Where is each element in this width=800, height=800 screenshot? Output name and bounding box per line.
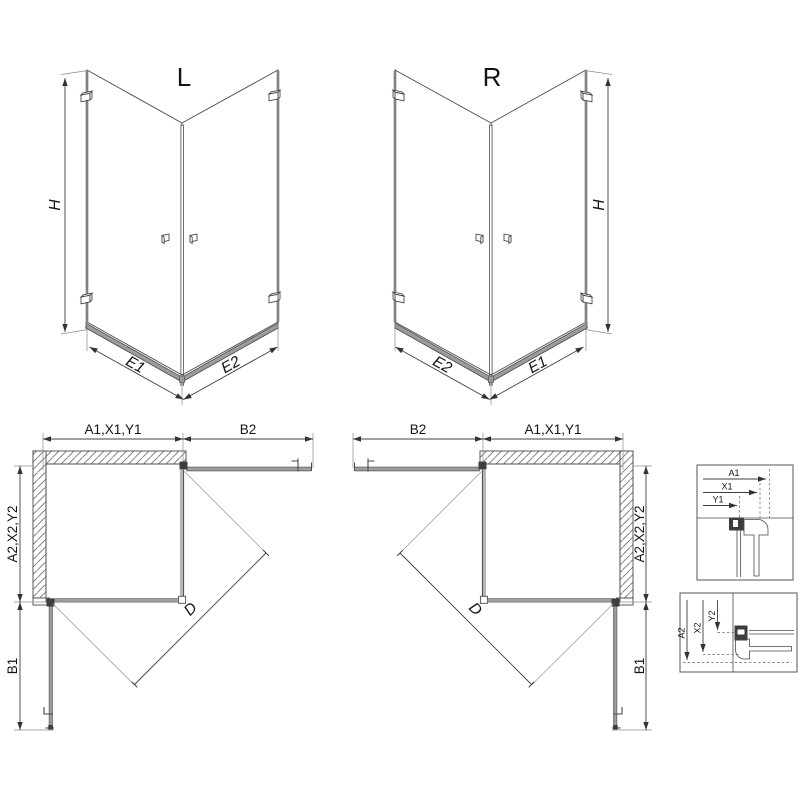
wall-profile-detail-horizontal — [697, 465, 793, 580]
dim-label-height-right: H — [591, 199, 608, 211]
plan-left-view — [14, 433, 313, 730]
variant-label-right: R — [483, 62, 502, 92]
dim-label-door-depth-left-plan: B1 — [5, 658, 20, 675]
dim-label-depth-inner-right-plan: A2,X2,Y2 — [632, 505, 647, 562]
technical-drawing-page: L R H H E1 E2 E2 E1 A1,X1,Y1 B2 A2,X2,Y2… — [0, 0, 800, 800]
dim-label-height-left: H — [47, 199, 64, 211]
dim-label-door-width-right-plan: B2 — [410, 422, 427, 437]
detail-dim-y2: Y2 — [707, 610, 717, 621]
detail-dim-y1: Y1 — [712, 495, 723, 505]
dim-label-depth-inner-left-plan: A2,X2,Y2 — [5, 505, 20, 562]
shower-enclosure-technical-drawing: L R H H E1 E2 E2 E1 A1,X1,Y1 B2 A2,X2,Y2… — [0, 0, 800, 800]
detail-dim-a2: A2 — [677, 627, 687, 638]
dim-label-width-inner-left-plan: A1,X1,Y1 — [84, 422, 141, 437]
detail-dim-x2: X2 — [693, 622, 703, 633]
plan-right-walls — [480, 451, 633, 605]
perspective-right-view — [393, 70, 612, 405]
perspective-left-view — [61, 70, 280, 405]
detail-dim-a1: A1 — [728, 468, 739, 478]
plan-left-walls — [33, 451, 186, 605]
dim-label-width-inner-right-plan: A1,X1,Y1 — [524, 422, 581, 437]
dim-label-door-depth-right-plan: B1 — [632, 658, 647, 675]
variant-label-left: L — [177, 62, 191, 92]
plan-right-view — [353, 433, 652, 730]
detail-dim-x1: X1 — [721, 482, 732, 492]
dim-label-door-width-left-plan: B2 — [240, 422, 257, 437]
